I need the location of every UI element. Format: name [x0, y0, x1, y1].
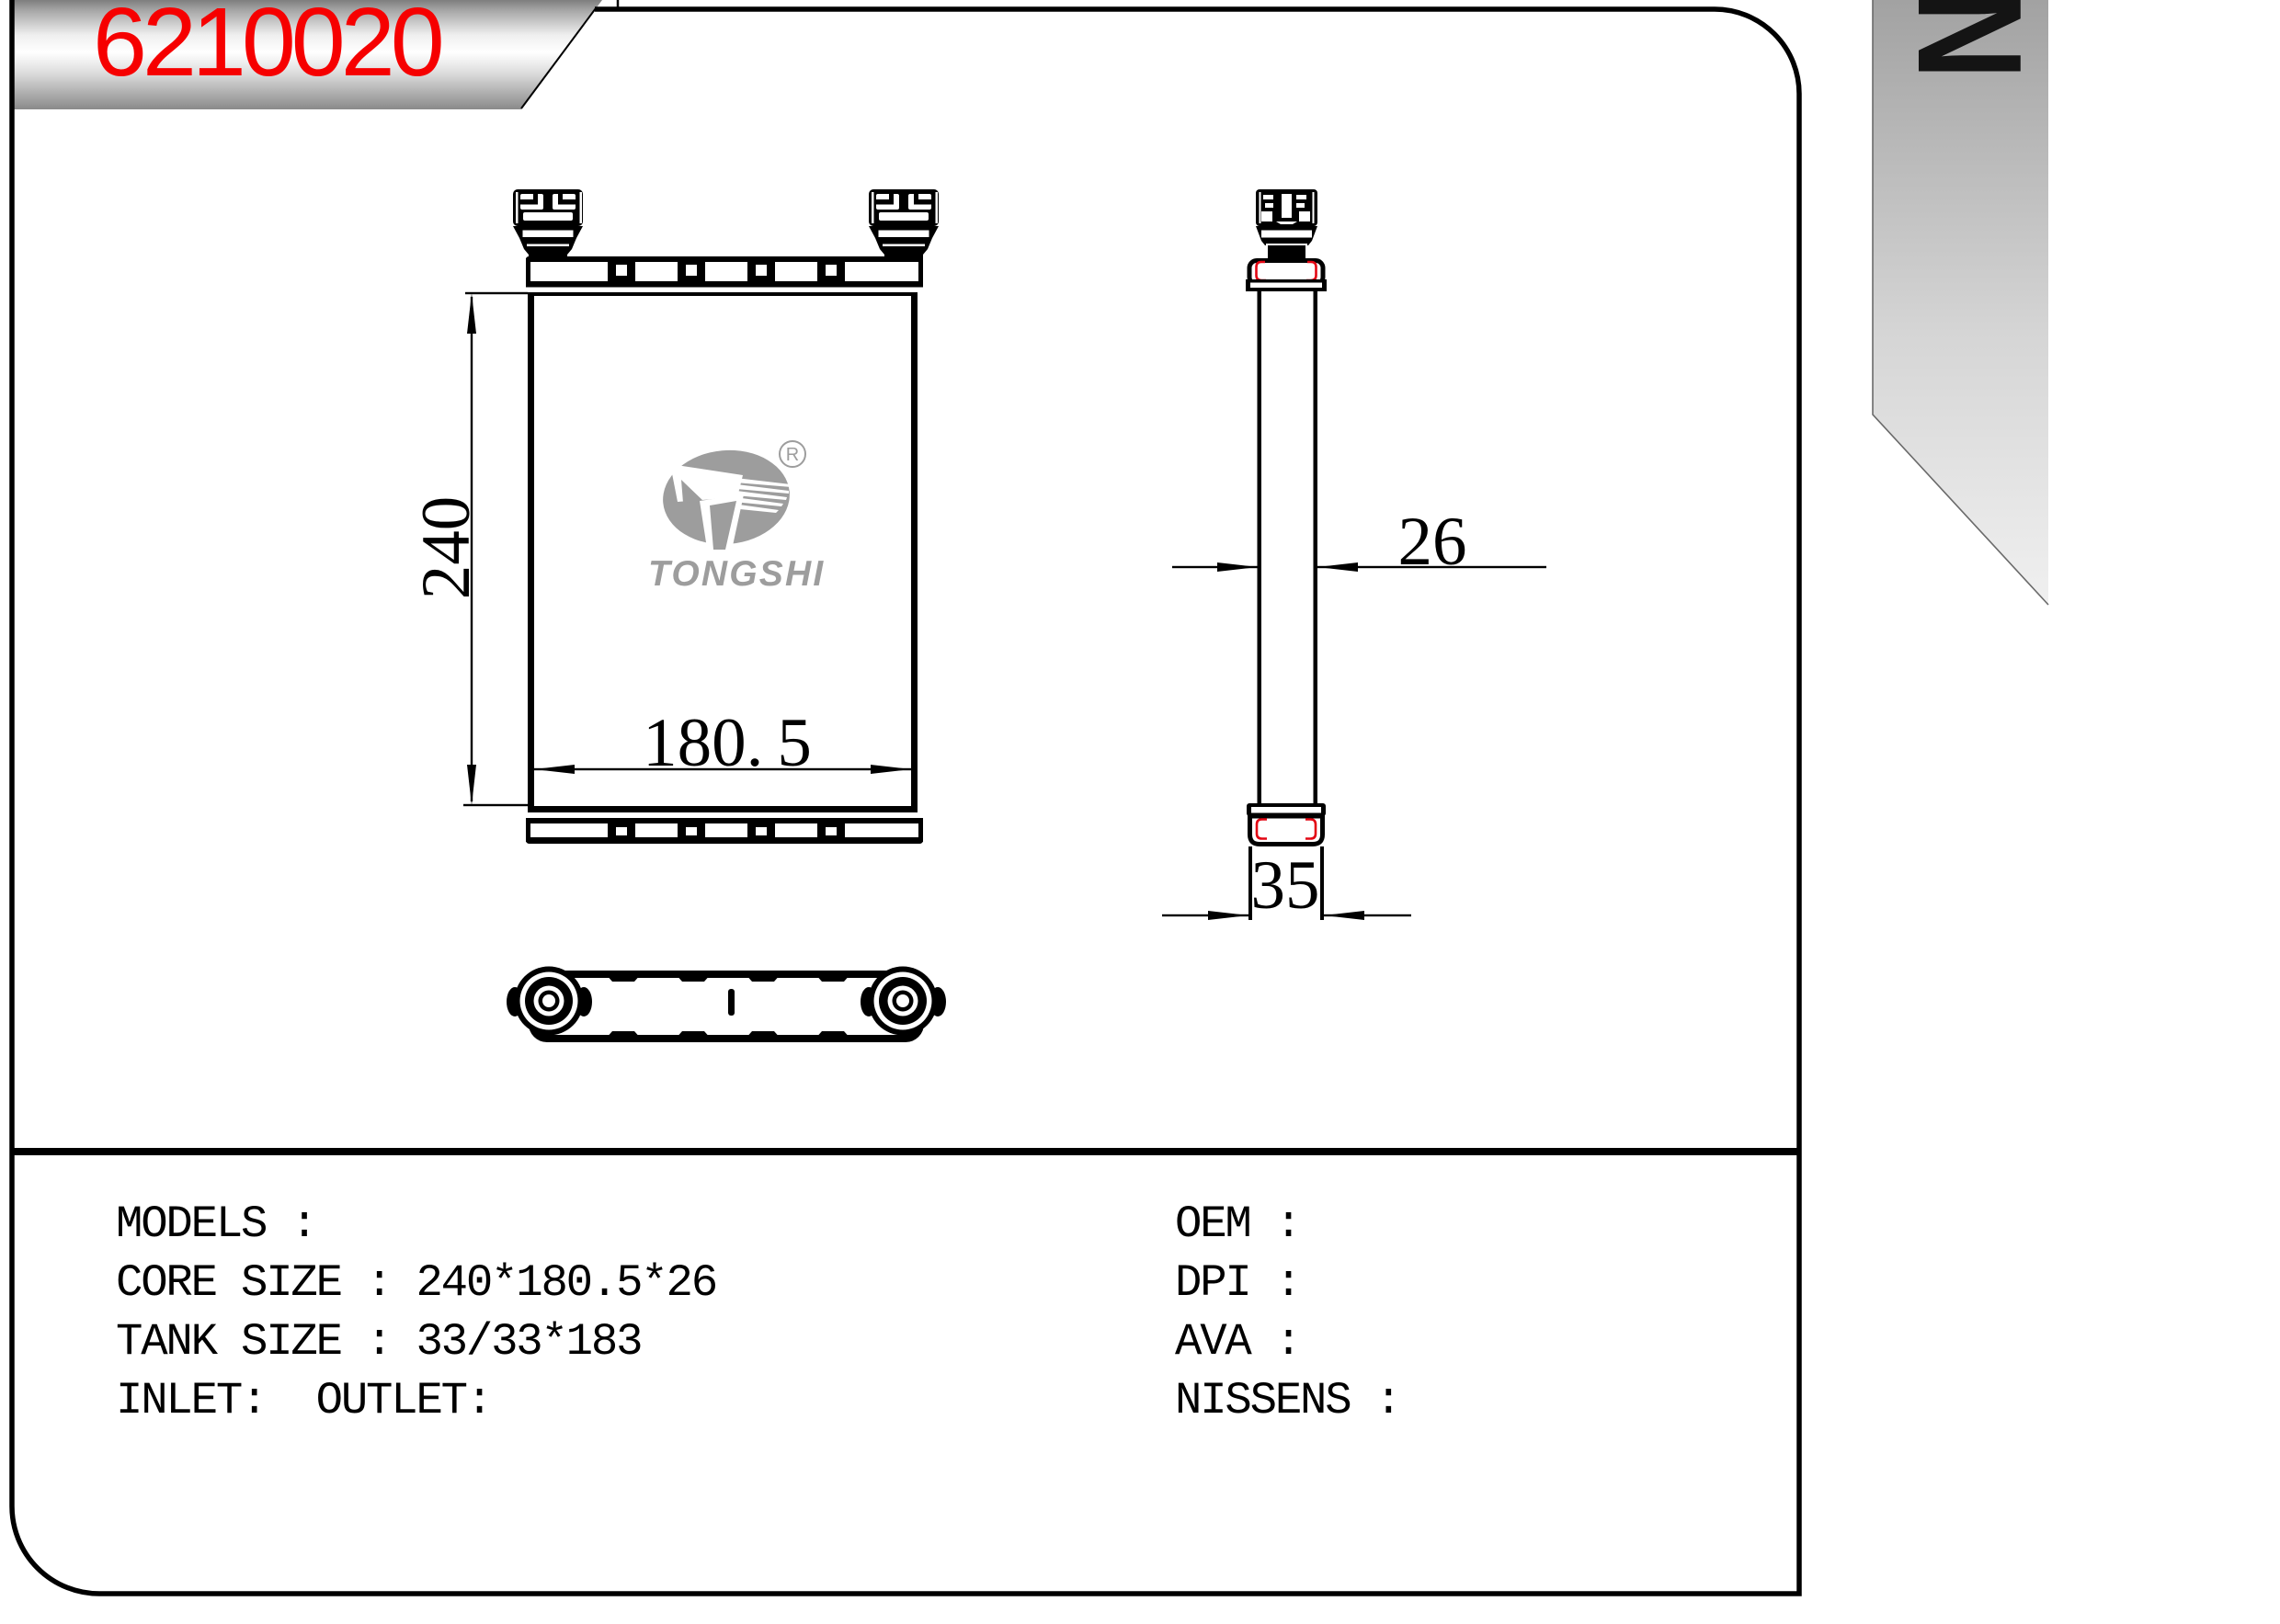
svg-text:INLET: OUTLET:: INLET: OUTLET: — [116, 1375, 491, 1426]
svg-text:AVA :: AVA : — [1175, 1316, 1300, 1368]
svg-text:DPI :: DPI : — [1175, 1257, 1300, 1309]
svg-text:MODELS :: MODELS : — [116, 1198, 316, 1250]
svg-text:6210020: 6210020 — [93, 0, 441, 97]
svg-text:R: R — [786, 445, 799, 465]
svg-text:240: 240 — [408, 496, 484, 600]
svg-text:180. 5: 180. 5 — [643, 705, 812, 781]
svg-text:26: 26 — [1398, 504, 1467, 580]
svg-text:TANK SIZE : 33/33*183: TANK SIZE : 33/33*183 — [116, 1316, 641, 1368]
svg-text:TONGSHI: TONGSHI — [648, 554, 825, 594]
svg-text:OEM :: OEM : — [1175, 1198, 1300, 1250]
svg-text:CORE SIZE : 240*180.5*26: CORE SIZE : 240*180.5*26 — [116, 1257, 716, 1309]
svg-text:35: 35 — [1251, 847, 1320, 924]
svg-text:N: N — [1887, 0, 2053, 80]
svg-text:NISSENS :: NISSENS : — [1175, 1375, 1400, 1426]
